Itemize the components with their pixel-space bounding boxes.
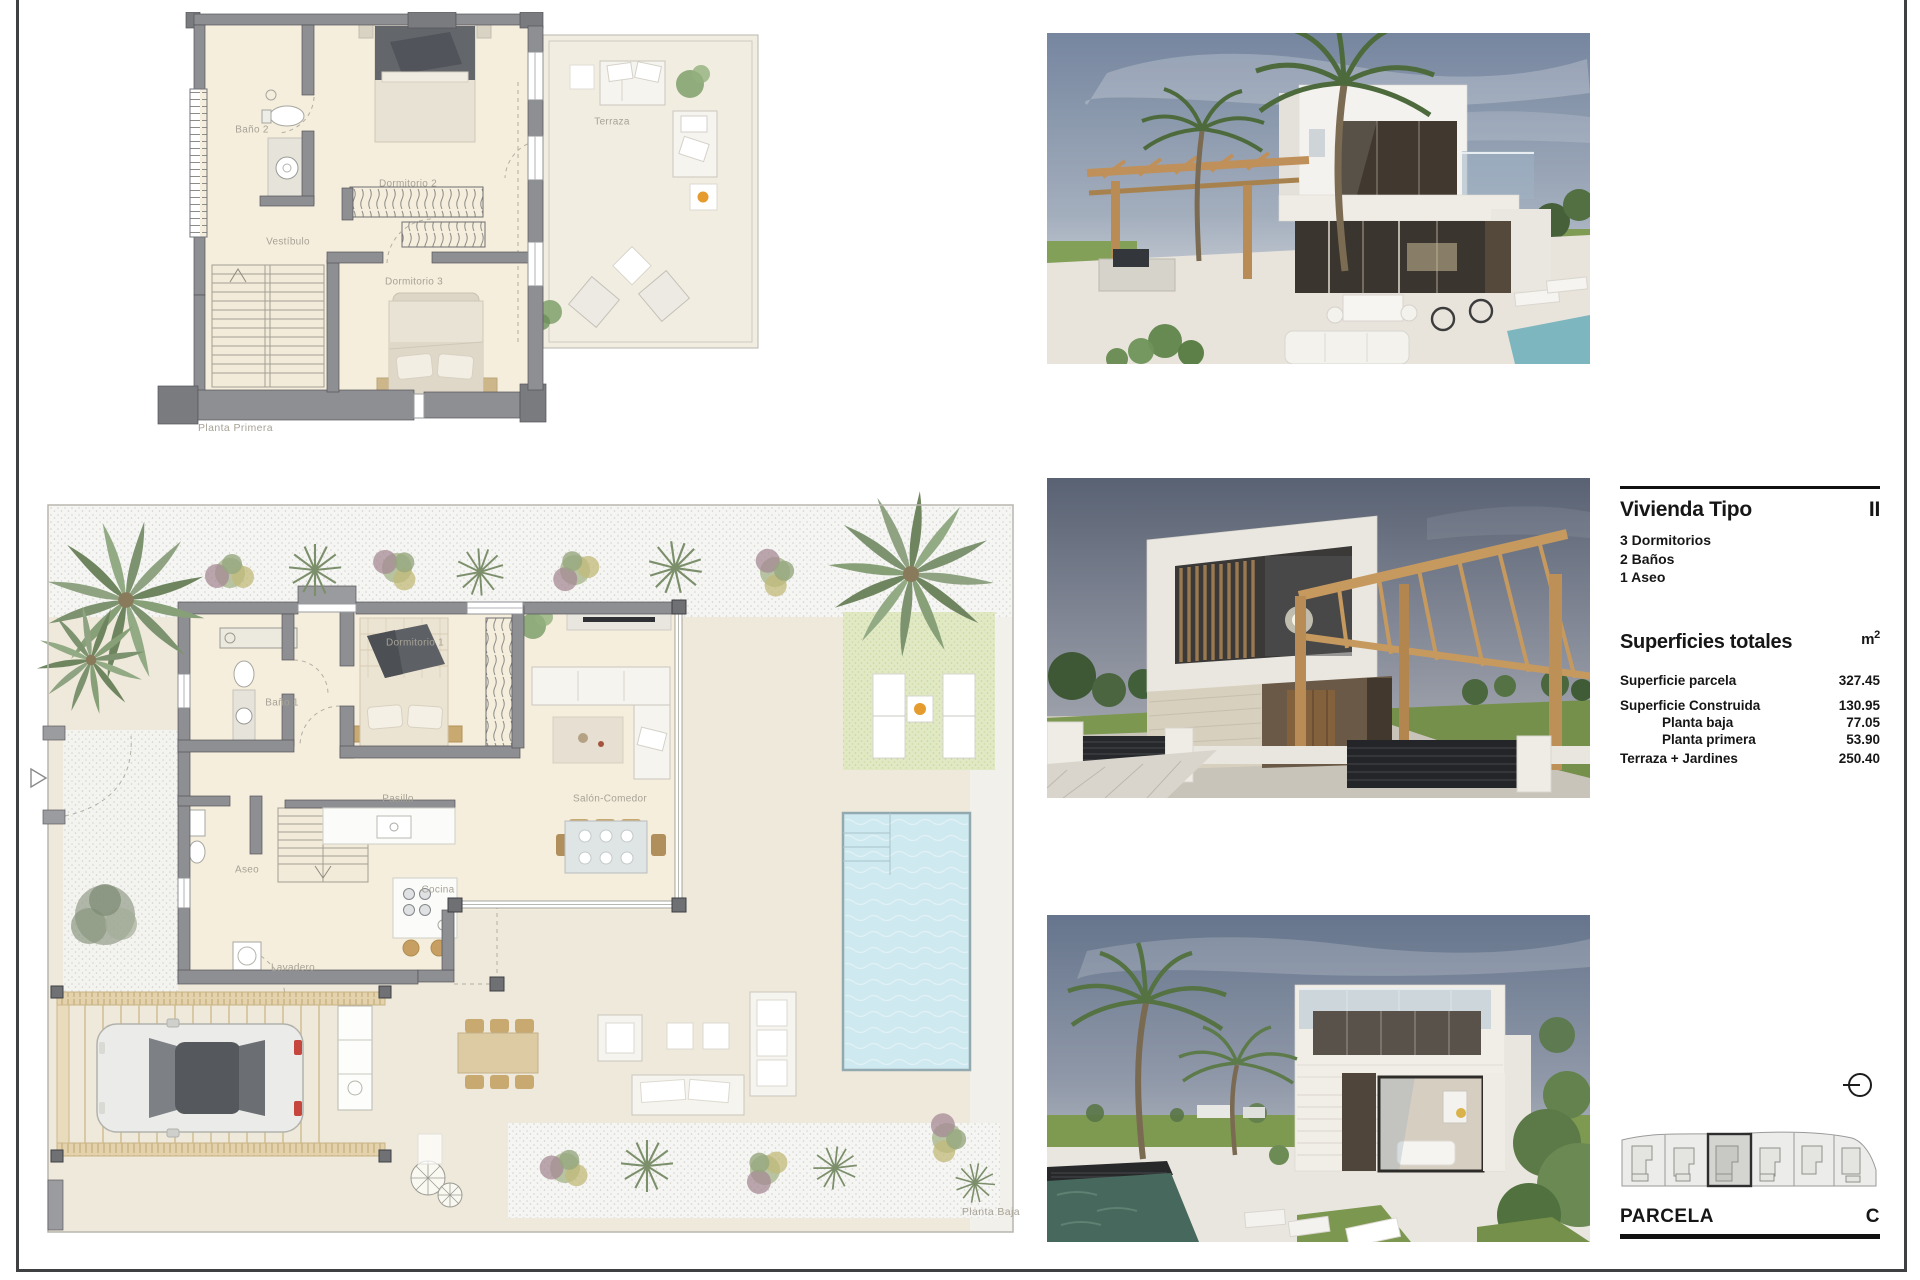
terrace-side-table xyxy=(690,184,717,210)
room-label-salon-comedor: Salón-Comedor xyxy=(573,794,647,805)
row-value: 130.95 xyxy=(1839,697,1880,714)
row-value: 250.40 xyxy=(1839,750,1880,767)
north-arrow-icon xyxy=(1838,1070,1878,1100)
stairs-up xyxy=(212,265,324,387)
swimming-pool xyxy=(843,813,970,1070)
parcela-value: C xyxy=(1866,1206,1880,1228)
room-label-dormitorio-1: Dormitorio 1 xyxy=(386,638,444,649)
spec-panel: Vivienda Tipo II 3 Dormitorios 2 Baños 1… xyxy=(1620,486,1880,767)
lavadero-washer xyxy=(233,942,261,970)
table-row: Terraza + Jardines 250.40 xyxy=(1620,750,1880,767)
row-value: 327.45 xyxy=(1839,672,1880,689)
unit-m2: m2 xyxy=(1861,629,1880,648)
table-row: Superficie parcela 327.45 xyxy=(1620,672,1880,689)
room-label-bano-1: Baño 1 xyxy=(265,698,299,709)
vivienda-type-value: II xyxy=(1869,498,1880,522)
row-label: Superficie Construida xyxy=(1620,697,1760,714)
room-label-bano-2: Baño 2 xyxy=(235,125,269,136)
bed-dormitorio-3 xyxy=(377,293,497,395)
sheet-marker-icon xyxy=(28,766,50,790)
panel-bottom-rule xyxy=(1620,1234,1880,1239)
wardrobe-2 xyxy=(402,222,485,247)
terrace-sofa xyxy=(600,61,665,105)
wardrobe xyxy=(486,618,512,746)
row-value: 77.05 xyxy=(1846,714,1880,731)
superficies-totales-heading: Superficies totales xyxy=(1620,631,1792,654)
surface-table: Superficie parcela 327.45 Superficie Con… xyxy=(1620,672,1880,767)
row-label: Planta primera xyxy=(1620,731,1756,748)
render-photo-exterior-front xyxy=(1047,33,1590,364)
row-label: Planta baja xyxy=(1620,714,1733,731)
floor-plan-planta-primera xyxy=(150,12,790,452)
rug xyxy=(553,717,623,763)
parcela-panel: PARCELA C xyxy=(1620,1060,1880,1239)
room-label-aseo: Aseo xyxy=(235,865,259,876)
room-label-pasillo: Pasillo xyxy=(382,794,414,805)
caption-planta-primera: Planta Primera xyxy=(198,422,273,434)
feature-banos: 2 Baños xyxy=(1620,550,1880,569)
render-photo-exterior-pool xyxy=(1047,915,1590,1242)
feature-aseo: 1 Aseo xyxy=(1620,568,1880,587)
parcela-label: PARCELA xyxy=(1620,1206,1714,1228)
vivienda-tipo-title: Vivienda Tipo xyxy=(1620,498,1752,522)
floor-plan-planta-baja xyxy=(35,478,1025,1253)
row-value: 53.90 xyxy=(1846,731,1880,748)
row-label: Terraza + Jardines xyxy=(1620,750,1738,767)
site-plan-diagram xyxy=(1620,1122,1878,1200)
room-label-lavadero: Lavadero xyxy=(271,963,315,974)
render-photo-exterior-dusk xyxy=(1047,478,1590,798)
room-label-terraza: Terraza xyxy=(594,117,629,128)
room-label-dormitorio-3: Dormitorio 3 xyxy=(385,277,443,288)
terrace-corner-sofa xyxy=(673,111,717,177)
room-label-dormitorio-2: Dormitorio 2 xyxy=(379,179,437,190)
row-label: Superficie parcela xyxy=(1620,672,1736,689)
feature-dormitorios: 3 Dormitorios xyxy=(1620,531,1880,550)
car-top-view xyxy=(97,1019,303,1137)
feature-list: 3 Dormitorios 2 Baños 1 Aseo xyxy=(1620,531,1880,587)
table-row: Planta primera 53.90 xyxy=(1620,731,1880,748)
terrace-area xyxy=(534,35,758,348)
room-label-vestibulo: Vestíbulo xyxy=(266,237,310,248)
house xyxy=(1295,985,1531,1171)
caption-planta-baja: Planta Baja xyxy=(830,1206,1020,1218)
panel-top-rule xyxy=(1620,486,1880,489)
outdoor-dining xyxy=(458,1019,538,1089)
wardrobe-1 xyxy=(350,187,483,217)
bed-dormitorio-2 xyxy=(359,22,491,142)
table-row: Superficie Construida 130.95 xyxy=(1620,697,1880,714)
pergola-post xyxy=(490,977,504,991)
room-label-cocina: Cocina xyxy=(422,885,455,896)
plan-sheet-page: Baño 2 Vestíbulo Dormitorio 2 Dormitorio… xyxy=(0,0,1920,1280)
table-row: Planta baja 77.05 xyxy=(1620,714,1880,731)
